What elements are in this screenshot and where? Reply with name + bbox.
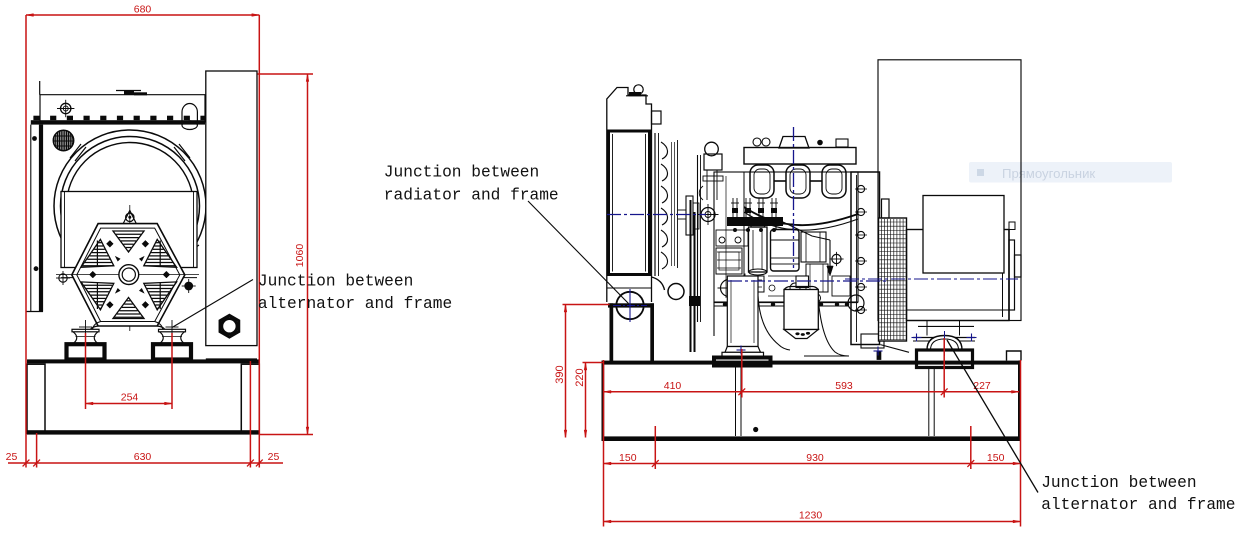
svg-text:25: 25 [268,451,280,463]
svg-text:593: 593 [835,380,853,392]
svg-text:220: 220 [574,368,586,386]
svg-text:390: 390 [554,365,566,383]
svg-text:alternator and frame: alternator and frame [258,295,452,313]
svg-text:alternator and frame: alternator and frame [1041,496,1235,514]
svg-text:1060: 1060 [294,244,306,268]
svg-text:227: 227 [973,380,991,392]
svg-text:150: 150 [987,452,1005,464]
svg-text:Прямоугольник: Прямоугольник [1002,166,1095,181]
svg-text:Junction between: Junction between [258,272,413,290]
svg-text:930: 930 [806,452,824,464]
svg-text:Junction between: Junction between [384,163,539,181]
svg-text:630: 630 [134,451,152,463]
svg-text:25: 25 [6,451,18,463]
svg-text:254: 254 [121,392,139,404]
svg-text:680: 680 [134,4,152,16]
svg-text:150: 150 [619,452,637,464]
svg-text:radiator and frame: radiator and frame [384,186,559,204]
svg-text:Junction between: Junction between [1041,474,1196,492]
svg-text:410: 410 [664,380,682,392]
svg-text:1230: 1230 [799,510,823,522]
